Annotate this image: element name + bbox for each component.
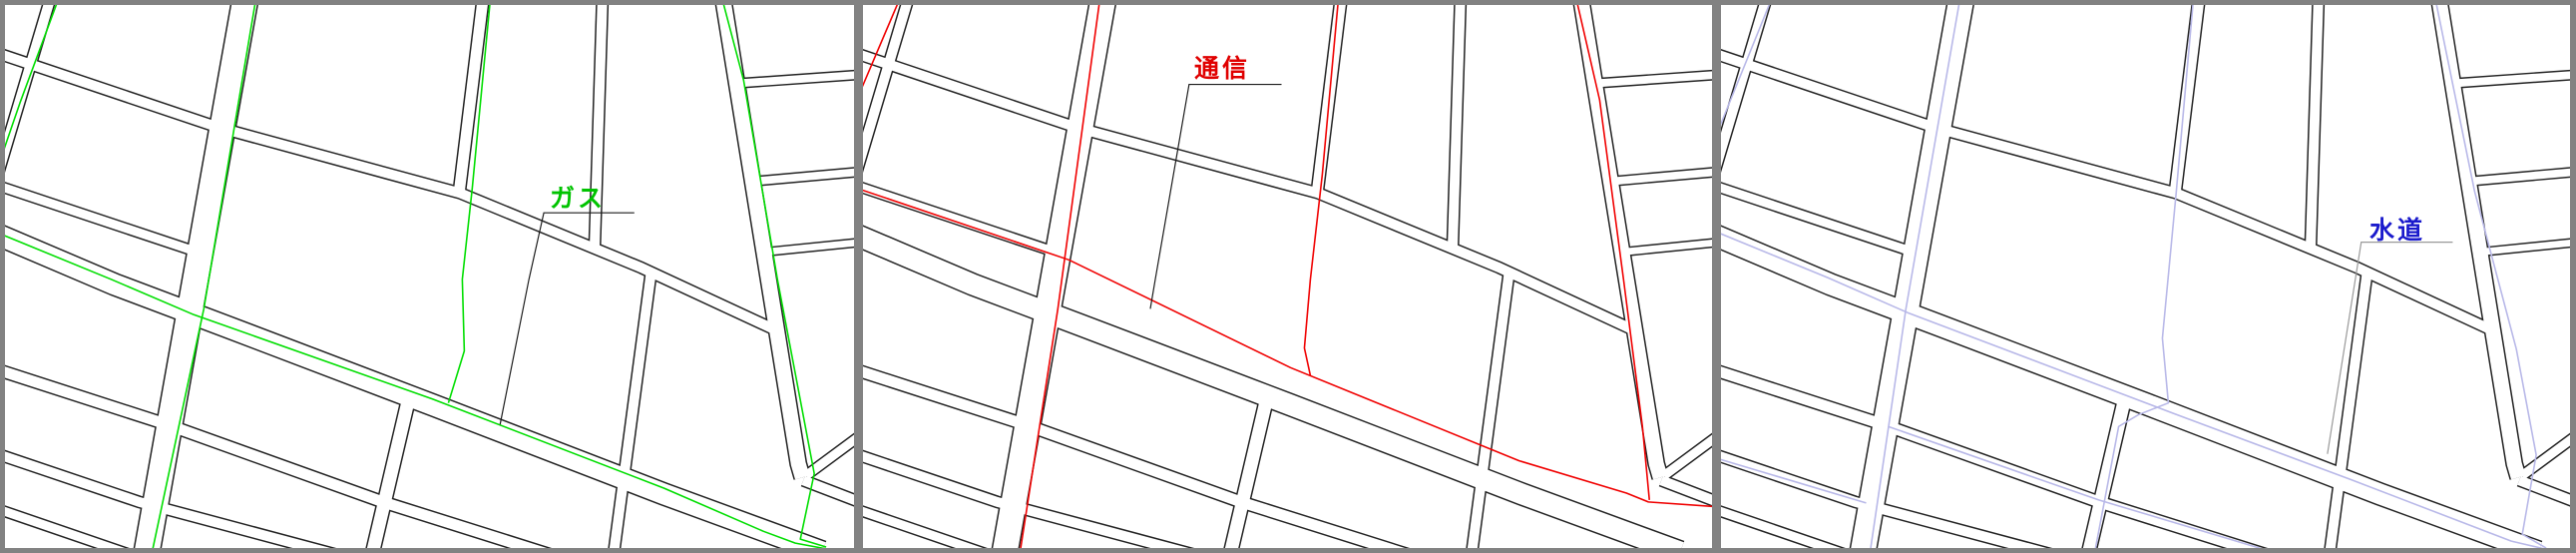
gas-label[interactable]: ガス [550, 186, 606, 211]
street-network [863, 5, 1712, 548]
gas-lines[interactable] [5, 5, 832, 548]
water-label[interactable]: 水道 [2369, 218, 2425, 243]
utility-map-window: ガス 通信 [0, 0, 2576, 553]
map-viewport-gas[interactable]: ガス [5, 5, 854, 548]
water-lines[interactable] [1721, 5, 2549, 548]
street-network [5, 5, 854, 548]
telecom-label-leader-line [1150, 85, 1282, 309]
telecom-lines[interactable] [863, 5, 1712, 548]
street-network [1721, 5, 2570, 548]
gas-label-leader-line [500, 213, 635, 424]
map-viewport-water[interactable]: 水道 [1721, 5, 2570, 548]
map-viewport-telecom[interactable]: 通信 [863, 5, 1712, 548]
telecom-label[interactable]: 通信 [1194, 56, 1250, 81]
